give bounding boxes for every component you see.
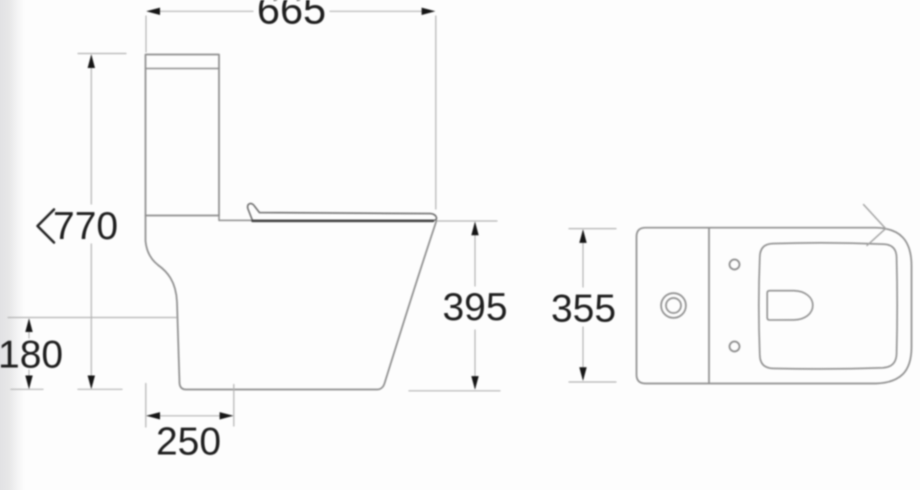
svg-text:665: 665 — [257, 0, 326, 33]
svg-text:250: 250 — [156, 421, 221, 464]
svg-text:355: 355 — [551, 288, 616, 331]
svg-text:395: 395 — [442, 286, 507, 329]
svg-text:180: 180 — [0, 334, 63, 377]
svg-text:770: 770 — [53, 205, 118, 248]
